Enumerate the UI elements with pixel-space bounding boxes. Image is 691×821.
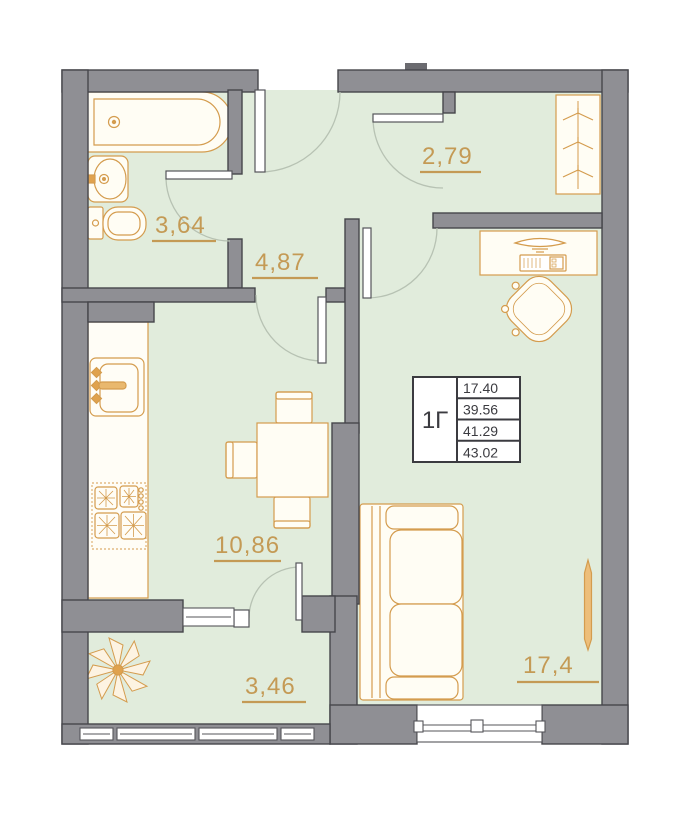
dining-chair-top <box>276 392 312 423</box>
wall-bottom-right-segment <box>542 705 628 744</box>
kitchen-counter <box>88 322 148 598</box>
unit-info-table: 1Г 17.40 39.56 41.29 43.02 <box>413 377 520 462</box>
toilet-icon <box>88 207 146 240</box>
info-row-2: 41.29 <box>463 423 498 439</box>
info-row-0: 17.40 <box>463 380 498 396</box>
balcony-door-threshold <box>234 610 249 627</box>
wall-bathroom-right-upper <box>228 90 242 174</box>
wall-bathroom-right-lower <box>228 239 242 288</box>
living-door-leaf <box>363 228 371 298</box>
bathtub-icon <box>86 92 232 152</box>
balcony-area-label: 3,46 <box>245 673 296 700</box>
wall-wardrobe-room-stub <box>443 92 455 113</box>
wall-balcony-door-jamb <box>302 596 335 632</box>
bathroom-door-leaf <box>166 171 232 179</box>
entrance-door-leaf <box>255 90 265 172</box>
wall-top-right <box>338 70 628 92</box>
dining-chair-left <box>226 442 257 478</box>
wardrobe-room-door-leaf <box>373 114 443 122</box>
unit-type-label: 1Г <box>422 407 448 434</box>
wall-bottom-left-segment <box>330 705 417 744</box>
kitchen-area-label: 10,86 <box>215 532 280 559</box>
bathroom-area-label: 3,64 <box>155 212 206 239</box>
wall-central-middle <box>332 423 359 604</box>
info-row-1: 39.56 <box>463 402 498 418</box>
wall-hall-living <box>433 213 602 228</box>
keyboard-icon <box>520 255 566 271</box>
dining-table-icon <box>257 423 328 497</box>
wardrobe-icon <box>556 95 600 194</box>
wall-bathroom-bottom <box>62 288 255 302</box>
dining-chair-bottom <box>274 497 310 528</box>
sofa-icon <box>360 504 463 700</box>
hallway-area-label: 4,87 <box>255 249 306 276</box>
wall-left <box>62 70 88 744</box>
living-area-label: 17,4 <box>523 652 574 679</box>
bathroom-sink-icon <box>87 156 128 202</box>
floor-plan-page: 3,64 4,87 2,79 10,86 3,46 17,4 1Г 17.40 … <box>0 0 691 821</box>
living-room-window <box>414 705 545 742</box>
wall-balcony-separation <box>62 600 183 632</box>
balcony-door-leaf <box>296 563 302 620</box>
wall-kitchen-door-stub <box>326 288 345 302</box>
wall-kitchen-top <box>88 302 154 322</box>
info-row-3: 43.02 <box>463 444 498 460</box>
wall-top-left <box>62 70 258 92</box>
wall-right <box>602 70 628 744</box>
kitchen-door-leaf <box>318 297 326 363</box>
wardrobe-room-area-label: 2,79 <box>422 143 473 170</box>
floor-plan-canvas: 3,64 4,87 2,79 10,86 3,46 17,4 1Г 17.40 … <box>0 0 691 821</box>
radiator-icon <box>585 560 592 650</box>
desk-icon <box>480 231 597 275</box>
wall-central-upper <box>345 219 359 433</box>
balcony-side-window <box>183 608 234 626</box>
